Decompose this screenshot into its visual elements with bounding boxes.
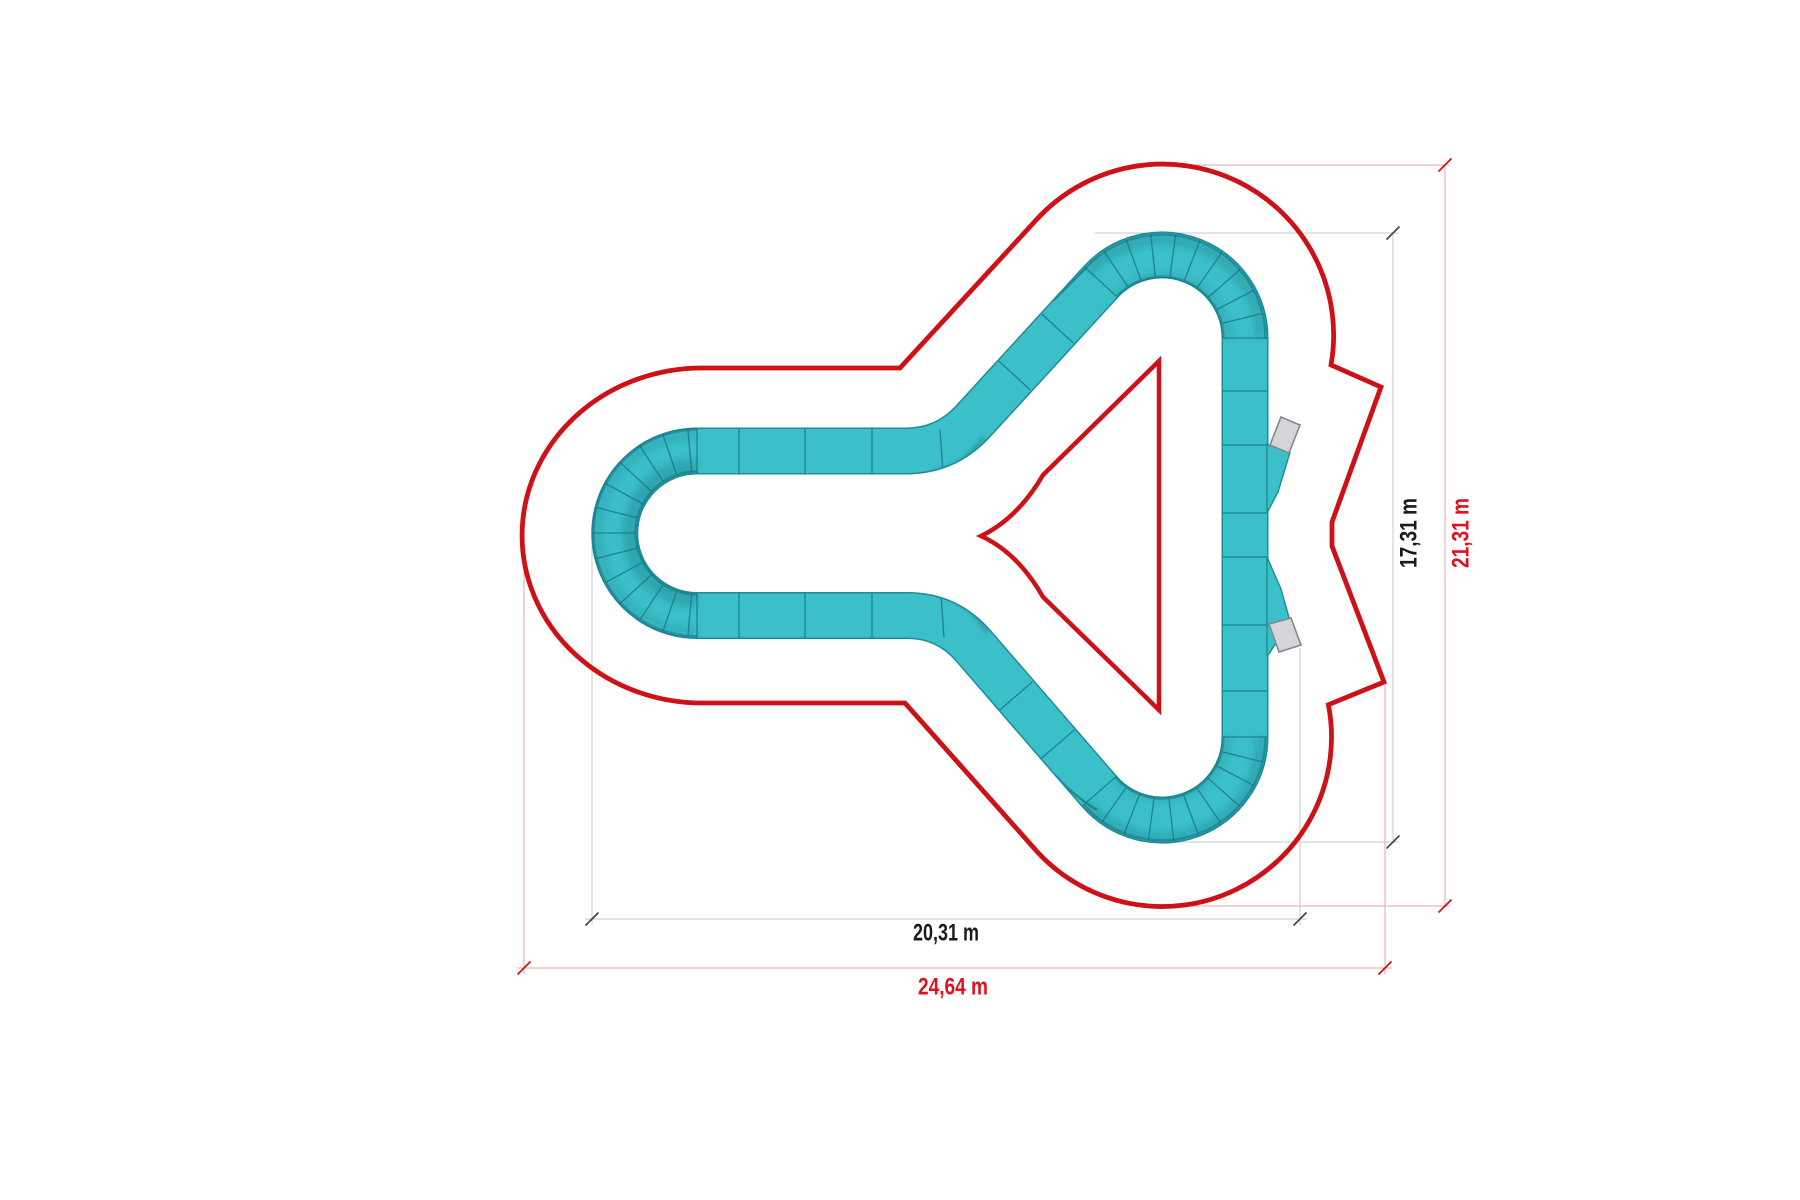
- svg-text:17,31 m: 17,31 m: [1396, 498, 1423, 568]
- svg-text:24,64 m: 24,64 m: [918, 974, 988, 1001]
- svg-text:21,31 m: 21,31 m: [1448, 498, 1475, 568]
- svg-text:20,31 m: 20,31 m: [913, 920, 979, 947]
